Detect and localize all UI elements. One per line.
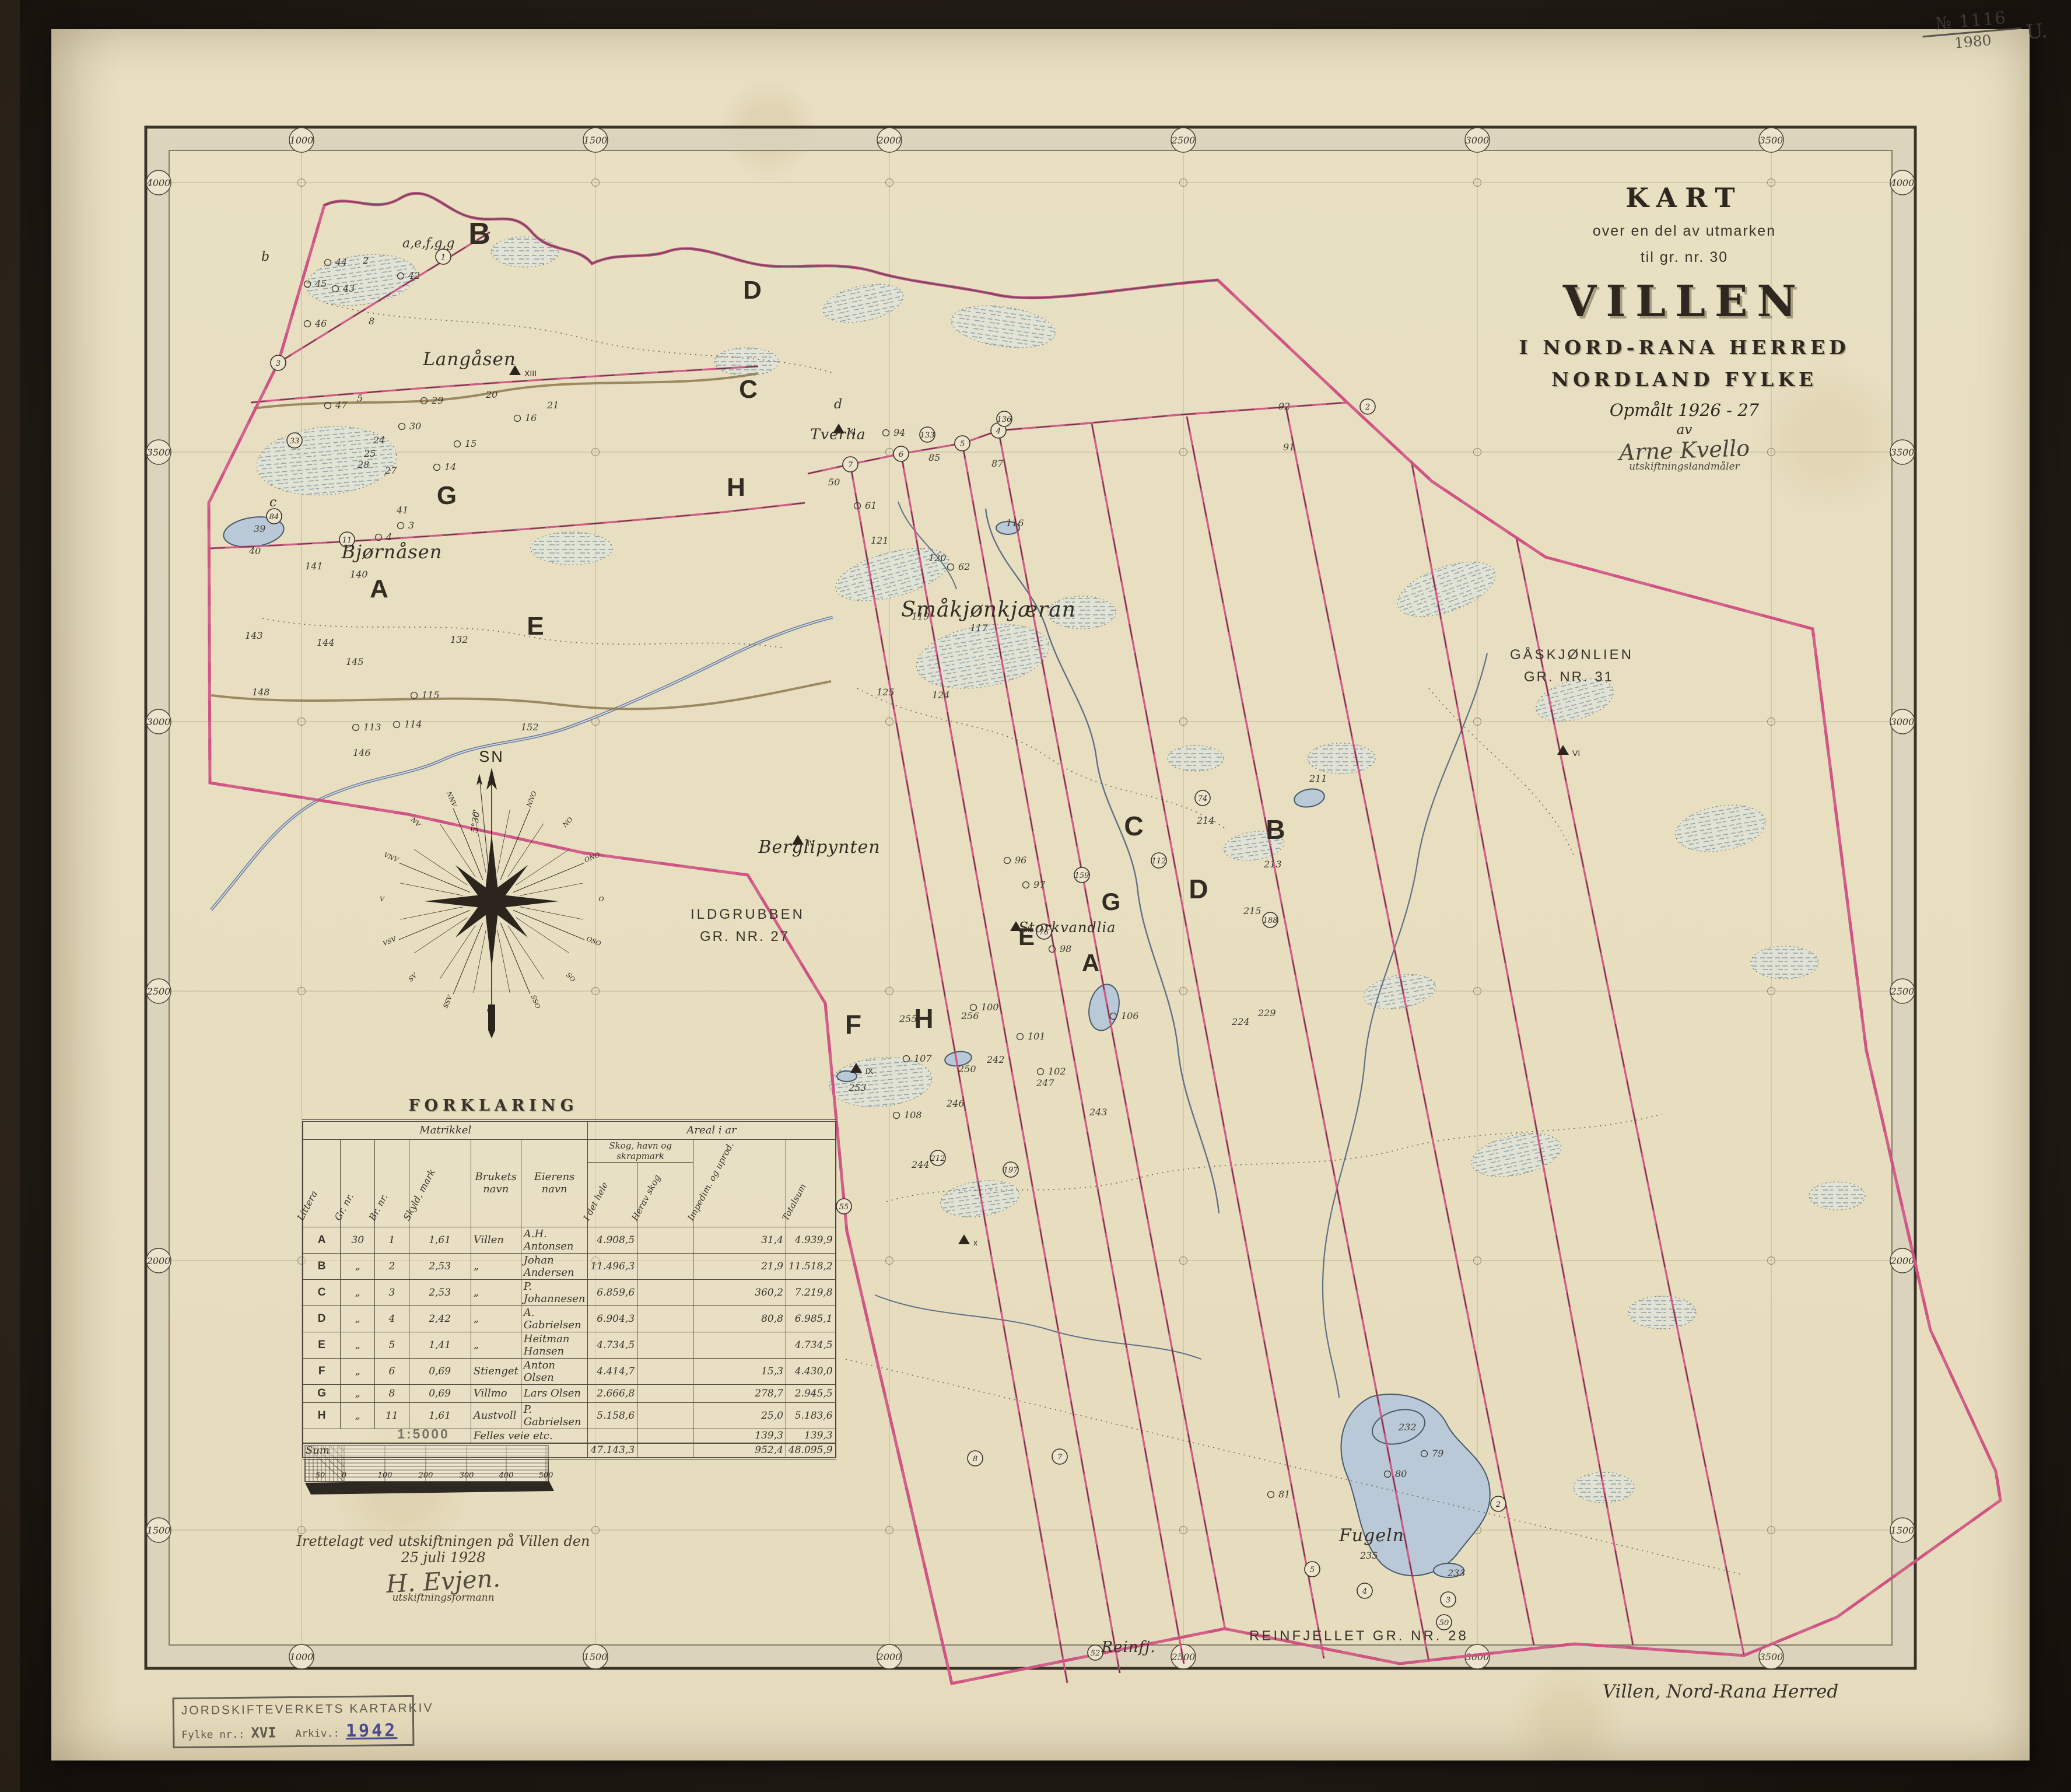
station-number: 2	[1365, 403, 1370, 412]
station-number: 7	[1057, 1453, 1063, 1462]
station-number: 197	[1004, 1166, 1019, 1175]
parcel-number: 244	[911, 1159, 930, 1170]
grid-label: 1500	[1891, 1525, 1915, 1536]
table-cell: D	[303, 1305, 341, 1332]
compass-direction-label: O	[598, 895, 604, 903]
station-number: 33	[290, 437, 300, 446]
scale-tick-label: 200	[418, 1471, 433, 1480]
protocol-point	[514, 415, 521, 422]
station-number: 3	[1446, 1596, 1450, 1605]
compass-ray	[497, 810, 510, 873]
protocol-point	[1268, 1492, 1274, 1498]
table-cell: 4.734,5	[786, 1332, 835, 1358]
scale-tick-label: 50	[316, 1471, 325, 1480]
station-number: 84	[269, 513, 279, 521]
parcel-number: 24	[373, 435, 385, 446]
archive-stamp-detail: Fylke nr.: XVI Arkiv.: 1942	[181, 1720, 407, 1743]
table-cell: 6.859,6	[588, 1279, 637, 1305]
table-row-sum: Sum47.143,3952,448.095,9	[303, 1443, 836, 1458]
grid-label: 1000	[290, 135, 314, 146]
protocol-point	[353, 724, 359, 731]
title-line2: over en del av utmarken	[1515, 223, 1853, 240]
parcel-number: 256	[961, 1010, 979, 1021]
protocol-point	[1038, 1069, 1044, 1075]
parcel-number: 96	[1015, 855, 1026, 866]
table-cell: F	[303, 1358, 341, 1384]
table-cell: 4.414,7	[588, 1358, 637, 1384]
compass-direction-label: SV	[407, 971, 419, 984]
table-cell: H	[303, 1402, 341, 1429]
parcel-number: 92	[1278, 401, 1290, 412]
station-number: 52	[1091, 1649, 1101, 1658]
table-cell: 278,7	[693, 1384, 786, 1402]
compass-direction-label: VSV	[382, 935, 398, 947]
table-cell: 5.183,6	[786, 1402, 835, 1429]
table-cell: A.H. Antonsen	[521, 1227, 588, 1253]
table-cell: P. Gabrielsen	[521, 1402, 588, 1429]
parcel-number: 250	[958, 1063, 976, 1074]
compass-ray	[453, 923, 483, 994]
table-row: E„51,41„Heitman Hansen4.734,54.734,5	[303, 1332, 836, 1358]
compass-ray	[440, 926, 475, 979]
table-row: A3011,61VillenA.H. Antonsen4.908,531,44.…	[303, 1227, 836, 1253]
scale-tick-label: 0	[342, 1471, 346, 1480]
parcel-number: 5	[357, 393, 363, 404]
title-name: VILLEN	[1515, 276, 1853, 327]
compass-ray	[414, 918, 467, 953]
parcel-number: 14	[444, 461, 456, 473]
parcel-number: 235	[1359, 1550, 1378, 1561]
table-cell: Villmo	[471, 1384, 521, 1402]
grid-label: 1500	[147, 1525, 171, 1536]
table-cell: 15,3	[693, 1358, 786, 1384]
triangulation-icon	[958, 1234, 970, 1244]
table-cell: B	[303, 1253, 341, 1279]
station-number: 136	[997, 415, 1012, 424]
parcel-number: 2	[362, 255, 369, 266]
compass-ray	[399, 910, 470, 940]
table-cell: 25,0	[693, 1402, 786, 1429]
zone-letter: C	[1124, 811, 1143, 841]
parcel-number: 40	[248, 545, 261, 556]
declination-arrow-icon	[476, 773, 482, 785]
parcel-number: 140	[350, 569, 368, 580]
table-cell	[693, 1332, 786, 1358]
parcel-number: 80	[1395, 1468, 1407, 1479]
lot-letter: b	[261, 250, 269, 264]
compass-ray	[414, 849, 467, 885]
station-number: 1	[441, 253, 446, 262]
compass-ray	[508, 926, 544, 979]
explanation-table: Matrikkel Areal i ar Littera Gr. nr. Br.…	[302, 1119, 836, 1459]
station-number: 112	[1152, 857, 1166, 866]
parcel-number: 233	[1447, 1567, 1466, 1578]
parcel-number: 50	[828, 477, 840, 488]
roads	[211, 373, 831, 709]
neighbor-name: GÅSKJØNLIEN	[1510, 646, 1634, 663]
parcel-number: 85	[928, 452, 940, 463]
parcel-number: 125	[877, 687, 895, 698]
parcel-number: 43	[342, 283, 355, 294]
protocol-point	[399, 423, 405, 430]
grid-label: 3500	[1760, 1651, 1783, 1662]
parcel-number: 27	[384, 465, 397, 476]
table-cell	[637, 1227, 693, 1253]
parcel-number: 106	[1121, 1010, 1139, 1021]
table-cell: 4.734,5	[588, 1332, 637, 1358]
zone-letter: G	[1102, 888, 1121, 915]
grid-label: 3500	[1760, 135, 1783, 146]
table-cell: 2.666,8	[588, 1384, 637, 1402]
sheet-footnote: Villen, Nord-Rana Herred	[1575, 1681, 1866, 1702]
table-cell	[637, 1279, 693, 1305]
zone-letter: D	[743, 276, 762, 304]
compass-direction-label: NNV	[445, 790, 458, 808]
table-cell: 3	[375, 1279, 409, 1305]
zone-letter: A	[370, 575, 388, 603]
table-cell: 0,69	[409, 1384, 471, 1402]
south-feather-icon	[488, 1005, 495, 1038]
protocol-point	[948, 564, 954, 570]
protocol-point	[394, 722, 400, 728]
parcel-number: 102	[1048, 1066, 1066, 1077]
table-cell: Villen	[471, 1227, 521, 1253]
parcel-number: 213	[1263, 859, 1282, 870]
parcel-number: 211	[1309, 773, 1327, 784]
title-fylke: NORDLAND FYLKE	[1515, 368, 1853, 391]
neighbor-name: ILDGRUBBEN	[691, 907, 805, 922]
parcel-number: 41	[396, 505, 408, 516]
parcel-number: 21	[546, 400, 559, 411]
protocol-point	[454, 441, 461, 447]
grid-label: 3500	[1891, 447, 1915, 458]
parcel-number: 146	[353, 747, 371, 758]
archive-stamp-title: JORDSKIFTEVERKETS KARTARKIV	[181, 1702, 407, 1718]
zone-letter: F	[845, 1009, 861, 1039]
parcel-number: 101	[1028, 1031, 1046, 1042]
table-cell: 31,4	[693, 1227, 786, 1253]
table-cell: A. Gabrielsen	[521, 1305, 588, 1332]
table-cell: „	[471, 1305, 521, 1332]
compass-direction-label: OSO	[586, 935, 602, 948]
photo-backdrop: 1000150020002500300035001000150020002500…	[0, 0, 2071, 1792]
table-cell: 5	[375, 1332, 409, 1358]
parcel-number: 144	[317, 637, 335, 648]
table-cell: „	[341, 1332, 375, 1358]
zone-letter: C	[739, 375, 758, 404]
parcel-number: 114	[404, 719, 422, 730]
parcel-number: 116	[1006, 517, 1024, 528]
arkiv-value: 1942	[346, 1720, 398, 1741]
table-cell	[637, 1402, 693, 1429]
protocol-point	[411, 692, 418, 699]
parcel-number: 81	[1278, 1489, 1290, 1500]
zone-letter: E	[527, 612, 544, 640]
parcel-number: 62	[958, 561, 970, 572]
parcel-number: 100	[981, 1002, 999, 1013]
protocol-point	[1004, 857, 1011, 864]
protocol-point	[398, 523, 404, 529]
table-cell: „	[341, 1358, 375, 1384]
parcel-number: 243	[1089, 1107, 1108, 1118]
parcel-number: 8	[369, 316, 374, 327]
station-number: 5	[960, 440, 965, 449]
parcel-number: 107	[914, 1053, 932, 1064]
table-cell: 2.945,5	[786, 1384, 835, 1402]
grid-label: 3000	[147, 716, 171, 727]
table-cell: 0,69	[409, 1358, 471, 1384]
station-number: 159	[1075, 871, 1089, 880]
grid-label: 3000	[1891, 716, 1915, 727]
table-cell: A	[303, 1227, 341, 1253]
table-row: F„60,69StiengetAnton Olsen4.414,715,34.4…	[303, 1358, 836, 1384]
table-cell: Stienget	[471, 1358, 521, 1384]
grid-label: 2500	[146, 986, 171, 997]
lot-letter: a,e,f,g,g	[402, 236, 455, 251]
zone-letter: H	[914, 1003, 933, 1034]
parcel-number: 242	[986, 1054, 1005, 1065]
place-label: Småkjønkjæran	[901, 598, 1076, 622]
protocol-point	[1017, 1034, 1024, 1040]
table-cell: „	[341, 1402, 375, 1429]
table-cell: „	[341, 1253, 375, 1279]
col-group-matrikkel: Matrikkel	[303, 1121, 588, 1139]
parcel-number: 121	[871, 535, 889, 546]
compass-ray	[400, 883, 463, 895]
table-cell: „	[341, 1305, 375, 1332]
compass-direction-label: NNO	[525, 790, 538, 808]
station-number: 50	[1439, 1619, 1449, 1627]
table-cell: Lars Olsen	[521, 1384, 588, 1402]
parcel-number: 97	[1033, 879, 1046, 890]
scale-tick-label: 300	[460, 1471, 474, 1480]
table-cell: 30	[341, 1227, 375, 1253]
title-surveyed: Opmålt 1926 - 27	[1515, 400, 1853, 420]
parcel-number: 117	[970, 622, 988, 633]
parcel-number: 108	[904, 1109, 922, 1121]
compass-ray	[516, 918, 569, 953]
zone-letter: A	[1082, 949, 1099, 977]
table-cell: 2,53	[409, 1253, 471, 1279]
grid-label: 3500	[147, 447, 171, 458]
neighbor-gnr: GR. NR. 31	[1524, 669, 1614, 685]
parcel-number: 39	[254, 523, 265, 534]
parcel-number: 132	[450, 634, 468, 645]
place-label: Storkvandlia	[1019, 919, 1116, 936]
table-cell: P. Johannesen	[521, 1279, 588, 1305]
neighbor-name: REINFJELLET GR. NR. 28	[1249, 1628, 1469, 1644]
compass-ray	[516, 849, 569, 885]
triangulation-label: VI	[1572, 748, 1580, 758]
col-totalsum: Totalsum	[786, 1139, 835, 1227]
compass-ray	[399, 863, 470, 892]
parcel-number: 61	[865, 500, 877, 511]
parcel-number: 253	[848, 1082, 867, 1093]
title-kart: KART	[1515, 182, 1853, 213]
protocol-point	[304, 321, 311, 327]
table-cell: 7.219,8	[786, 1279, 835, 1305]
table-cell: 6.985,1	[786, 1305, 835, 1332]
parcel-number: 214	[1196, 815, 1215, 826]
compass-ray	[513, 910, 584, 940]
parcel-number: 79	[1432, 1448, 1443, 1459]
station-number: 188	[1263, 916, 1278, 925]
table-cell: 80,8	[693, 1305, 786, 1332]
archive-stamp: JORDSKIFTEVERKETS KARTARKIV Fylke nr.: X…	[173, 1695, 415, 1748]
parcel-number: 224	[1231, 1016, 1250, 1027]
parcel-number: 152	[521, 722, 539, 733]
station-number: 8	[973, 1455, 977, 1464]
table-cell: 6.904,3	[588, 1305, 637, 1332]
zone-letter: D	[1189, 874, 1208, 904]
parcel-number: 115	[422, 689, 440, 701]
table-cell: „	[471, 1253, 521, 1279]
col-skyld: Skyld, mark	[409, 1139, 471, 1227]
grid-label: 2000	[877, 1651, 902, 1662]
parcel-number: 45	[314, 278, 327, 289]
protocol-point	[434, 464, 440, 471]
parcel-number: 15	[465, 438, 476, 449]
parcel-number: 215	[1243, 905, 1261, 916]
compass-direction-label: NO	[561, 815, 574, 829]
table-row: C„32,53„P. Johannesen6.859,6360,27.219,8	[303, 1279, 836, 1305]
parcel-number: 124	[932, 689, 950, 701]
parcel-number: 120	[928, 552, 947, 563]
table-cell: 4.430,0	[786, 1358, 835, 1384]
parcel-number: 113	[363, 722, 381, 733]
table-cell: 11.518,2	[786, 1253, 835, 1279]
table-cell: 2,53	[409, 1279, 471, 1305]
table-cell: „	[341, 1279, 375, 1305]
place-label: Bjørnåsen	[341, 541, 443, 563]
place-label: Tverlia	[810, 426, 865, 443]
table-cell: 11	[375, 1402, 409, 1429]
table-cell: 4.939,9	[786, 1227, 835, 1253]
parcel-number: 20	[485, 389, 497, 400]
table-cell: 360,2	[693, 1279, 786, 1305]
fylke-value: XVI	[251, 1724, 276, 1741]
parcel-number: 145	[346, 656, 364, 667]
table-row: H„111,61AustvollP. Gabrielsen5.158,625,0…	[303, 1402, 836, 1429]
col-group-areal: Areal i ar	[588, 1121, 836, 1139]
explanation-panel: FORKLARING Matrikkel Areal i ar Littera …	[302, 1097, 685, 1459]
place-label: Fugeln	[1338, 1525, 1404, 1546]
dedication-block: Irettelagt ved utskiftningen på Villen d…	[292, 1533, 595, 1604]
grid-label: 2500	[1171, 135, 1196, 146]
triangulation-label: XIII	[524, 369, 537, 378]
triangulation-label: x	[973, 1238, 977, 1247]
col-bruket: Brukets navn	[471, 1139, 521, 1227]
parcel-number: 87	[991, 458, 1004, 469]
table-row: G„80,69VillmoLars Olsen2.666,8278,72.945…	[303, 1384, 836, 1402]
table-cell: 6	[375, 1358, 409, 1384]
compass-ray	[508, 824, 544, 877]
table-row-felles: Felles veie etc.139,3139,3	[303, 1429, 836, 1443]
parcel-number: 25	[363, 448, 376, 459]
table-cell: C	[303, 1279, 341, 1305]
table-cell	[637, 1358, 693, 1384]
compass-rose: NNONOONOOOSOSOSSOSSSVSVVSVVVNVNVNNV SN 5…	[380, 748, 604, 1038]
compass-ray	[520, 907, 583, 919]
registry-stamp-suffix: U.	[2026, 19, 2049, 44]
parcel-number: 148	[252, 687, 270, 698]
parcel-number: 91	[1283, 442, 1295, 453]
grid-label: 4000	[146, 177, 171, 188]
table-cell: 4	[375, 1305, 409, 1332]
table-cell	[637, 1332, 693, 1358]
title-line3: til gr. nr. 30	[1515, 249, 1853, 266]
grid-label: 1500	[584, 1651, 608, 1662]
grid-label: 2000	[877, 135, 902, 146]
table-cell	[637, 1384, 693, 1402]
place-label: Langåsen	[422, 349, 516, 370]
table-cell: 11.496,3	[588, 1253, 637, 1279]
table-cell: Johan Andersen	[521, 1253, 588, 1279]
parcel-number: 46	[314, 318, 327, 329]
table-cell	[637, 1253, 693, 1279]
grid-label: 2000	[146, 1255, 171, 1266]
zone-letter: B	[1266, 814, 1285, 845]
station-number: 7	[848, 461, 853, 470]
parcel-number: 143	[245, 630, 263, 641]
arkiv-label: Arkiv.:	[295, 1727, 339, 1740]
neighbor-gnr: GR. NR. 27	[700, 929, 790, 944]
parcel-number: 28	[357, 459, 369, 470]
table-cell: Austvoll	[471, 1402, 521, 1429]
table-cell: 8	[375, 1384, 409, 1402]
compass-direction-label: SSV	[441, 993, 454, 1009]
compass-north-label: SN	[479, 748, 504, 765]
table-title: FORKLARING	[302, 1097, 685, 1115]
col-herav: Herav skog	[637, 1162, 693, 1227]
table-cell: 5.158,6	[588, 1402, 637, 1429]
compass-direction-label: VNV	[383, 851, 400, 864]
zone-letter: H	[727, 473, 745, 502]
protocol-point	[1023, 882, 1029, 888]
compass-ray	[497, 930, 510, 993]
parcel-number: 3	[408, 520, 414, 531]
table-cell: „	[341, 1384, 375, 1402]
scale-tick-label: 400	[499, 1471, 514, 1480]
scale-tick-label: 100	[378, 1471, 393, 1480]
protocol-point	[893, 1112, 900, 1119]
parcel-number: 44	[335, 257, 347, 268]
compass-ray	[513, 863, 584, 892]
grid-label: 2000	[1890, 1255, 1915, 1266]
compass-direction-label: SO	[565, 971, 577, 984]
table-cell: Heitman Hansen	[521, 1332, 588, 1358]
compass-ray	[520, 883, 583, 895]
parcel-number: 42	[408, 270, 420, 281]
parcel-number: 47	[335, 400, 348, 411]
table-row: B„22,53„Johan Andersen11.496,321,911.518…	[303, 1253, 836, 1279]
station-number: 3	[276, 359, 281, 368]
protocol-point	[970, 1005, 977, 1011]
parcel-number: 141	[305, 561, 323, 572]
table-cell: 1,61	[409, 1227, 471, 1253]
parcel-number: 98	[1060, 943, 1071, 954]
lot-letter: d	[834, 397, 842, 412]
station-number: 212	[930, 1154, 945, 1163]
table-cell: 4.908,5	[588, 1227, 637, 1253]
parcel-number: 247	[1036, 1077, 1054, 1088]
station-number: 2	[1495, 1500, 1501, 1509]
parcel-number: 29	[431, 395, 443, 406]
station-number: 133	[920, 431, 935, 440]
parcel-number: 16	[525, 412, 537, 423]
compass-ray	[474, 930, 486, 993]
parcel-number: 232	[1398, 1422, 1417, 1433]
